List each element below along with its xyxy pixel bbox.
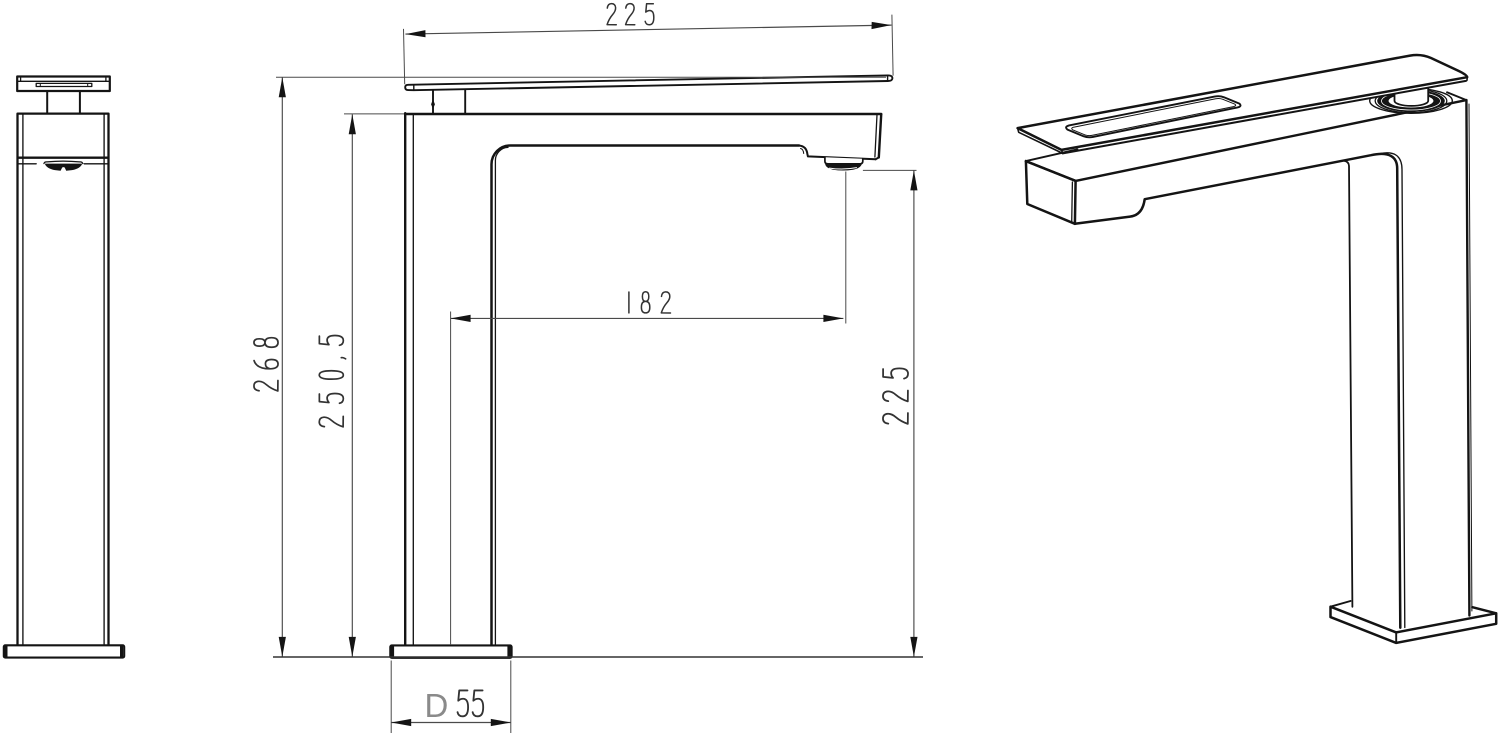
svg-text:D: D [425,687,449,724]
